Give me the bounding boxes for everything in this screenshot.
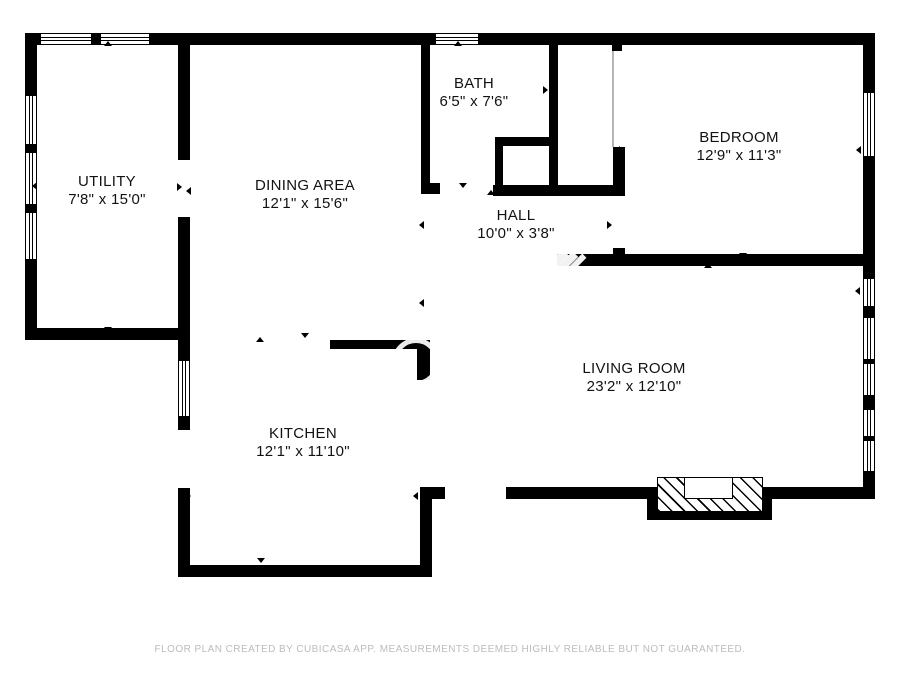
door-marker-triangle — [256, 337, 264, 342]
fireplace-inner — [684, 477, 733, 499]
footer-disclaimer: FLOOR PLAN CREATED BY CUBICASA APP. MEAS… — [0, 644, 900, 655]
window — [863, 440, 875, 472]
room-dimensions: 10'0" x 3'8" — [477, 225, 555, 243]
room-name: KITCHEN — [256, 425, 350, 443]
door-marker-triangle — [856, 146, 861, 154]
wall-segment — [178, 565, 432, 577]
door-marker-triangle — [704, 263, 712, 268]
door-marker-triangle — [739, 40, 747, 45]
window — [40, 33, 92, 45]
door-marker-triangle — [186, 187, 191, 195]
room-name: DINING AREA — [255, 177, 355, 195]
window — [863, 92, 875, 157]
window — [25, 212, 37, 260]
door-marker-triangle — [104, 41, 112, 46]
wall-segment — [420, 487, 445, 499]
room-label-utility: UTILITY 7'8" x 15'0" — [68, 173, 146, 209]
floor-plan: UTILITY 7'8" x 15'0" DINING AREA 12'1" x… — [0, 0, 900, 675]
room-name: BEDROOM — [696, 129, 781, 147]
wall-segment — [613, 147, 625, 196]
door-opening — [178, 430, 190, 488]
room-name: LIVING ROOM — [582, 360, 685, 378]
door-marker-triangle — [419, 221, 424, 229]
door-marker-triangle — [177, 183, 182, 191]
wall-segment — [557, 254, 875, 266]
door-marker-triangle — [487, 190, 495, 195]
door-marker-triangle — [454, 41, 462, 46]
room-dimensions: 12'1" x 11'10" — [256, 443, 350, 461]
door-marker-triangle — [424, 86, 429, 94]
room-dimensions: 12'9" x 11'3" — [696, 147, 781, 165]
room-name: UTILITY — [68, 173, 146, 191]
door-marker-triangle — [607, 221, 612, 229]
room-label-dining-area: DINING AREA 12'1" x 15'6" — [255, 177, 355, 213]
wall-segment — [421, 42, 430, 183]
room-label-hall: HALL 10'0" x 3'8" — [477, 207, 555, 243]
room-dimensions: 23'2" x 12'10" — [582, 378, 685, 396]
wall-segment — [421, 183, 440, 194]
door-marker-triangle — [301, 333, 309, 338]
wall-segment — [495, 137, 503, 187]
door-marker-triangle — [186, 492, 191, 500]
window — [863, 409, 875, 437]
door-marker-triangle — [543, 86, 548, 94]
door-marker-triangle — [739, 253, 747, 258]
door-marker-triangle — [104, 327, 112, 332]
room-label-living-room: LIVING ROOM 23'2" x 12'10" — [582, 360, 685, 396]
window — [863, 363, 875, 396]
door-marker-triangle — [32, 182, 37, 190]
door-marker-triangle — [459, 183, 467, 188]
wall-segment — [495, 137, 552, 146]
window — [863, 317, 875, 360]
door-marker-triangle — [413, 492, 418, 500]
room-label-kitchen: KITCHEN 12'1" x 11'10" — [256, 425, 350, 461]
window — [863, 278, 875, 307]
door-marker-triangle — [619, 146, 624, 154]
room-dimensions: 7'8" x 15'0" — [68, 191, 146, 209]
room-label-bath: BATH 6'5" x 7'6" — [440, 75, 509, 111]
room-name: HALL — [477, 207, 555, 225]
window — [25, 152, 37, 205]
room-dimensions: 6'5" x 7'6" — [440, 93, 509, 111]
room-dimensions: 12'1" x 15'6" — [255, 195, 355, 213]
wall-segment — [420, 487, 432, 577]
door-marker-triangle — [507, 186, 515, 191]
wall-segment — [178, 42, 190, 160]
room-label-bedroom: BEDROOM 12'9" x 11'3" — [696, 129, 781, 165]
closet-opening-line — [612, 51, 614, 147]
window — [25, 95, 37, 145]
wall-segment — [612, 42, 622, 51]
room-name: BATH — [440, 75, 509, 93]
wall-segment — [178, 217, 190, 340]
watermark-ring — [392, 338, 440, 386]
window — [178, 360, 190, 417]
door-marker-triangle — [257, 558, 265, 563]
door-marker-triangle — [419, 299, 424, 307]
wall-segment — [549, 42, 558, 196]
door-marker-triangle — [855, 287, 860, 295]
